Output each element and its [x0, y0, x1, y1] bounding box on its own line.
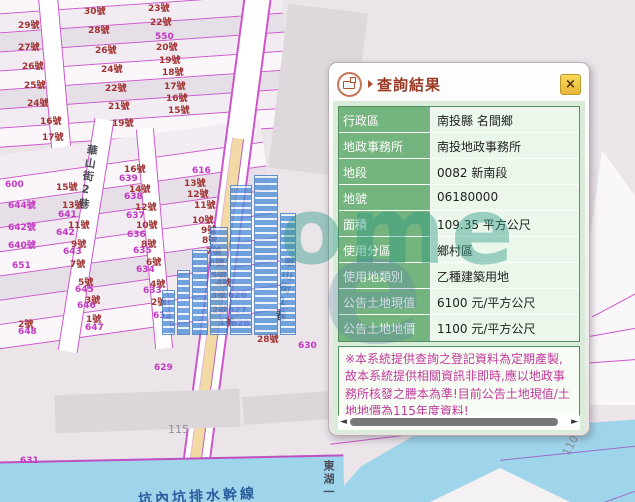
result-row: 地號06180000 — [339, 185, 579, 211]
result-row-label: 使用地類別 — [339, 263, 431, 288]
elevation-label: 110 — [561, 434, 581, 458]
result-row-value: 鄉村區 — [431, 237, 579, 262]
house-number-label: 7號 — [70, 261, 85, 270]
house-number-label: 22號 — [150, 19, 172, 28]
parcel-id-label: 648 — [18, 328, 37, 337]
result-row-label: 公告土地現值 — [339, 289, 431, 314]
result-row-value: 0082 新南段 — [431, 159, 579, 184]
result-row-value: 6100 元/平方公尺 — [431, 289, 579, 314]
parcel-id-label: 640號 — [8, 242, 36, 251]
parcel-id-label: 637 — [126, 212, 145, 221]
result-row-label: 地號 — [339, 185, 431, 210]
house-number-label: 26號 — [22, 63, 44, 72]
house-number-label: 2號 — [212, 307, 227, 316]
house-number-label: 15號 — [56, 184, 78, 193]
house-number-label: 28號 — [88, 27, 110, 36]
result-row-value: 南投地政事務所 — [431, 133, 579, 158]
parcel-id-label: 630 — [298, 342, 317, 351]
result-row: 地段0082 新南段 — [339, 159, 579, 185]
house-number-label: 18號 — [162, 69, 184, 78]
result-row: 使用地類別乙種建築用地 — [339, 263, 579, 289]
house-number-label: 13號 — [184, 180, 206, 189]
horizontal-scrollbar[interactable]: ◄ ► — [338, 415, 580, 430]
parcel-id-label: 644號 — [8, 202, 36, 211]
house-number-label: 11號 — [194, 202, 216, 211]
result-row-value: 1100 元/平方公尺 — [431, 315, 579, 341]
result-row-label: 地政事務所 — [339, 133, 431, 158]
parcel-id-label: 616 — [192, 167, 211, 176]
parcel-id-label: 642 — [56, 229, 75, 238]
parcel-id-label: 631 — [20, 457, 39, 466]
street-name-label: 華山街2巷 — [74, 143, 100, 212]
disclaimer-note: ※本系統提供查詢之登記資料為定期產製,故本系統提供相關資訊非即時,應以地政事務所… — [338, 346, 580, 418]
house-number-label: 29號 — [18, 22, 40, 31]
parcel-id-label: 626 — [228, 292, 247, 301]
house-number-label: 19號 — [112, 120, 134, 129]
parcel-id-label: 638 — [124, 193, 143, 202]
parcel-id-label: 634 — [136, 266, 155, 275]
house-number-label: 15號 — [168, 107, 190, 116]
result-row: 公告土地地價1100 元/平方公尺 — [339, 315, 579, 341]
house-number-label: 25號 — [24, 82, 46, 91]
house-number-label: 6號 — [209, 260, 224, 269]
result-row-label: 公告土地地價 — [339, 315, 431, 341]
house-number-label: 17號 — [42, 134, 64, 143]
parcel-id-label: 636 — [127, 231, 146, 240]
result-row-value: 乙種建築用地 — [431, 263, 579, 288]
house-number-label: 10號 — [192, 217, 214, 226]
scroll-left-arrow[interactable]: ◄ — [340, 416, 347, 429]
result-row: 面積109.35 平方公尺 — [339, 211, 579, 237]
arrow-icon — [368, 80, 373, 88]
parcel-id-label: 642號 — [8, 224, 36, 233]
house-number-label: 9號 — [201, 227, 216, 236]
house-number-label: 22號 — [105, 85, 127, 94]
house-number-label: 21號 — [108, 103, 130, 112]
result-row-value: 109.35 平方公尺 — [431, 211, 579, 236]
house-number-label: 30號 — [84, 8, 106, 17]
house-number-label: 16號 — [40, 118, 62, 127]
house-number-label: 23號 — [148, 5, 170, 14]
parcel-id-label: 651 — [12, 262, 31, 271]
result-row-value: 南投縣 名間鄉 — [431, 107, 579, 132]
house-number-label: 7號 — [206, 248, 221, 257]
parcel-id-label: 627 — [228, 307, 247, 316]
query-result-icon — [337, 72, 362, 97]
parcel-id-label: 639 — [119, 175, 138, 184]
house-number-label: 4號 — [216, 280, 231, 289]
parcel-id-label: 647 — [85, 324, 104, 333]
result-row: 地政事務所南投地政事務所 — [339, 133, 579, 159]
house-number-label: 19號 — [159, 57, 181, 66]
street-name-label: 華山街1巷 — [271, 255, 297, 324]
result-row-label: 面積 — [339, 211, 431, 236]
parcel-id-label: 635 — [133, 247, 152, 256]
house-number-label: 17號 — [164, 83, 186, 92]
house-number-label: 3號 — [211, 292, 226, 301]
house-number-label: 26號 — [95, 47, 117, 56]
house-number-label: 16號 — [166, 95, 188, 104]
house-number-label: 24號 — [27, 100, 49, 109]
scroll-right-arrow[interactable]: ► — [571, 416, 578, 429]
parcel-id-label: 550 — [155, 33, 174, 42]
parcel-id-label: 629 — [154, 364, 173, 373]
house-number-label: 8號 — [202, 237, 217, 246]
house-number-label: 27號 — [18, 44, 40, 53]
house-number-label: 28號 — [257, 336, 279, 345]
parcel-id-label: 632 — [153, 312, 172, 321]
result-row: 公告土地現值6100 元/平方公尺 — [339, 289, 579, 315]
house-number-label: 24號 — [101, 66, 123, 75]
result-row: 行政區南投縣 名間鄉 — [339, 107, 579, 133]
result-row-value: 06180000 — [431, 185, 579, 210]
parcel-id-label: 633 — [143, 287, 162, 296]
scrollbar-thumb[interactable] — [350, 418, 558, 426]
result-row-label: 使用分區 — [339, 237, 431, 262]
close-button[interactable]: × — [560, 74, 581, 95]
parcel-id-label: 628 — [231, 320, 250, 329]
parcel-id-label: 641 — [58, 211, 77, 220]
house-number-label: 20號 — [156, 44, 178, 53]
panel-title: 查詢結果 — [377, 74, 441, 95]
street-name-label: 東湖一 — [320, 460, 336, 499]
elevation-label: 115 — [168, 424, 189, 435]
results-panel: 查詢結果 × 行政區南投縣 名間鄉地政事務所南投地政事務所地段0082 新南段地… — [328, 62, 590, 436]
result-table: 行政區南投縣 名間鄉地政事務所南投地政事務所地段0082 新南段地號061800… — [338, 106, 580, 342]
parcel-id-label: 600 — [5, 181, 24, 190]
parcel-id-label: 643 — [63, 248, 82, 257]
map-viewport[interactable]: 29號27號26號25號24號16號30號28號26號24號22號21號19號2… — [0, 0, 635, 502]
result-row: 使用分區鄉村區 — [339, 237, 579, 263]
results-panel-titlebar[interactable]: 查詢結果 × — [333, 67, 585, 101]
parcel-id-label: 646 — [77, 302, 96, 311]
results-panel-body: 行政區南投縣 名間鄉地政事務所南投地政事務所地段0082 新南段地號061800… — [333, 101, 585, 433]
house-number-label: 2號 — [151, 299, 166, 308]
house-number-label: 12號 — [187, 191, 209, 200]
result-row-label: 地段 — [339, 159, 431, 184]
canal-name-label: 坑內坑排水幹線 — [138, 483, 258, 502]
result-row-label: 行政區 — [339, 107, 431, 132]
parcel-id-label: 645 — [75, 286, 94, 295]
